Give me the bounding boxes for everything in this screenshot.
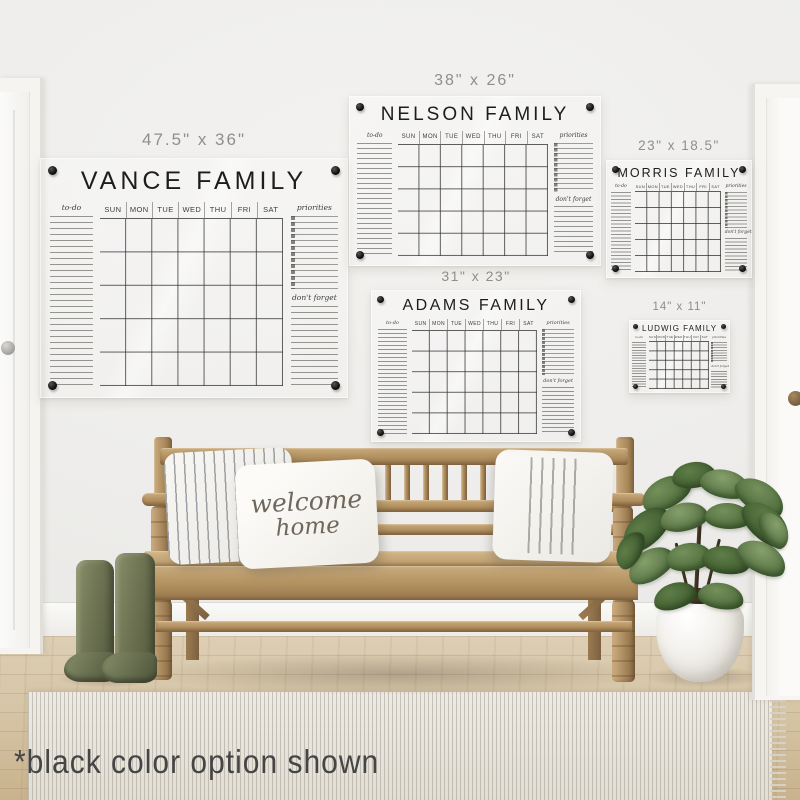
weekday-label: TUE — [440, 131, 462, 144]
weekday-label: TUE — [665, 335, 674, 341]
mounting-dot-icon — [612, 265, 619, 272]
month-grid: SUNMONTUEWEDTHUFRISAT — [635, 183, 722, 272]
rain-boot-right — [101, 553, 157, 683]
priorities-label: priorities — [554, 131, 593, 141]
footnote-text: *black color option shown — [14, 744, 379, 782]
todo-column: to-do — [357, 131, 392, 256]
grid-lines — [635, 192, 722, 272]
calendar-vance: 47.5" x 36" VANCE FAMILY to-do SUNMONTUE… — [40, 130, 348, 398]
month-grid: SUNMONTUEWEDTHUFRISAT — [398, 131, 548, 256]
weekday-label: FRI — [231, 202, 257, 218]
calendar-body: to-do SUNMONTUEWEDTHUFRISAT priorities d… — [40, 196, 348, 398]
weekday-label: MON — [429, 319, 447, 330]
month-grid: SUNMONTUEWEDTHUFRISAT — [412, 319, 537, 434]
todo-label: to-do — [632, 335, 646, 340]
calendar-body: to-do SUNMONTUEWEDTHUFRISAT priorities d… — [371, 315, 581, 442]
priorities-label: priorities — [725, 183, 748, 190]
weekday-label: FRI — [505, 131, 527, 144]
weekday-label: WED — [178, 202, 204, 218]
dont-forget-label: don't forget — [291, 292, 339, 304]
weekday-label: SAT — [257, 202, 283, 218]
todo-lines — [611, 192, 631, 272]
weekday-label: MON — [126, 202, 152, 218]
todo-lines — [357, 143, 392, 256]
mounting-dot-icon — [721, 384, 726, 389]
mounting-dot-icon — [377, 296, 384, 303]
mounting-dot-icon — [356, 251, 364, 259]
weekday-label: SAT — [709, 183, 722, 191]
mounting-dot-icon — [739, 265, 746, 272]
priorities-checklist — [291, 216, 339, 289]
priorities-label: priorities — [291, 202, 339, 214]
calendar-body: to-do SUNMONTUEWEDTHUFRISAT priorities d… — [629, 333, 730, 393]
family-title: VANCE FAMILY — [40, 167, 348, 196]
todo-label: to-do — [378, 319, 407, 327]
todo-label: to-do — [357, 131, 392, 141]
size-label: 23" x 18.5" — [606, 138, 752, 155]
weekday-label: FRI — [691, 335, 700, 341]
todo-column: to-do — [632, 335, 646, 389]
todo-column: to-do — [378, 319, 407, 434]
weekday-header: SUNMONTUEWEDTHUFRISAT — [635, 183, 722, 192]
calendar-adams: 31" x 23" ADAMS FAMILY to-do SUNMONTUEWE… — [371, 268, 581, 442]
acrylic-board: NELSON FAMILY to-do SUNMONTUEWEDTHUFRISA… — [349, 96, 601, 266]
mounting-dot-icon — [633, 384, 638, 389]
calendar-nelson: 38" x 26" NELSON FAMILY to-do SUNMONTUEW… — [349, 72, 601, 266]
acrylic-board: VANCE FAMILY to-do SUNMONTUEWEDTHUFRISAT… — [40, 158, 348, 398]
month-grid: SUNMONTUEWEDTHUFRISAT — [649, 335, 709, 389]
weekday-label: WED — [465, 319, 483, 330]
size-label: 47.5" x 36" — [40, 130, 348, 154]
weekday-label: THU — [483, 319, 501, 330]
priorities-column: priorities don't forget — [291, 202, 339, 386]
mounting-dot-icon — [356, 103, 364, 111]
priorities-label: priorities — [711, 335, 727, 340]
pillow-text-home: home — [275, 513, 340, 540]
weekday-label: SUN — [649, 335, 657, 341]
bench-apron — [150, 566, 638, 600]
bench-shadow — [135, 652, 665, 696]
family-title: LUDWIG FAMILY — [629, 324, 730, 333]
family-title: NELSON FAMILY — [349, 104, 601, 126]
size-label: 31" x 23" — [371, 268, 581, 285]
priorities-checklist — [542, 329, 574, 375]
mounting-dot-icon — [721, 324, 726, 329]
weekday-label: SUN — [412, 319, 429, 330]
mounting-dot-icon — [612, 166, 619, 173]
dont-forget-label: don't forget — [554, 195, 593, 205]
mounting-dot-icon — [48, 381, 57, 390]
weekday-label: THU — [204, 202, 230, 218]
month-grid: SUNMONTUEWEDTHUFRISAT — [100, 202, 283, 386]
todo-lines — [632, 342, 646, 389]
mounting-dot-icon — [586, 251, 594, 259]
calendar-body: to-do SUNMONTUEWEDTHUFRISAT priorities d… — [349, 126, 601, 266]
mounting-dot-icon — [633, 324, 638, 329]
todo-label: to-do — [50, 202, 93, 214]
family-title: ADAMS FAMILY — [371, 297, 581, 315]
dont-forget-label: don't forget — [711, 364, 727, 369]
mounting-dot-icon — [568, 429, 575, 436]
bench-spindle — [442, 465, 448, 502]
weekday-label: WED — [462, 131, 484, 144]
left-door-panel-line — [13, 110, 15, 630]
grid-lines — [398, 145, 548, 256]
todo-column: to-do — [611, 183, 631, 272]
right-doorknob-icon — [788, 391, 800, 406]
size-label: 14" x 11" — [629, 301, 730, 316]
weekday-label: MON — [419, 131, 441, 144]
priorities-checklist — [554, 143, 593, 193]
weekday-label: THU — [684, 183, 697, 191]
acrylic-board: ADAMS FAMILY to-do SUNMONTUEWEDTHUFRISAT… — [371, 290, 581, 442]
weekday-label: WED — [671, 183, 684, 191]
priorities-checklist — [725, 192, 748, 228]
acrylic-board: LUDWIG FAMILY to-do SUNMONTUEWEDTHUFRISA… — [629, 320, 730, 393]
weekday-label: SAT — [527, 131, 549, 144]
weekday-label: THU — [484, 131, 506, 144]
mounting-dot-icon — [586, 103, 594, 111]
rug-fringe — [770, 694, 786, 798]
left-door — [0, 92, 30, 648]
weekday-label: SUN — [398, 131, 419, 144]
grid-lines — [100, 219, 283, 386]
weekday-label: TUE — [152, 202, 178, 218]
priorities-column: priorities don't forget — [554, 131, 593, 256]
dont-forget-label: don't forget — [725, 229, 748, 236]
weekday-label: WED — [674, 335, 683, 341]
left-doorknob-icon — [1, 341, 15, 355]
weekday-label: SAT — [519, 319, 537, 330]
dont-forget-lines — [554, 206, 593, 255]
calendar-morris: 23" x 18.5" MORRIS FAMILY to-do SUNMONTU… — [606, 138, 752, 278]
weekday-label: SUN — [635, 183, 647, 191]
weekday-header: SUNMONTUEWEDTHUFRISAT — [412, 319, 537, 331]
bench-spindle — [385, 465, 391, 502]
family-title: MORRIS FAMILY — [606, 166, 752, 180]
bench-spindle — [404, 465, 410, 502]
weekday-header: SUNMONTUEWEDTHUFRISAT — [398, 131, 548, 145]
mounting-dot-icon — [377, 429, 384, 436]
pillow-stripe-band — [528, 457, 581, 555]
grid-lines — [412, 331, 537, 434]
priorities-column: priorities don't forget — [725, 183, 748, 272]
bench-stretcher — [156, 621, 632, 632]
grid-lines — [649, 342, 709, 389]
todo-lines — [378, 329, 407, 434]
weekday-label: SUN — [100, 202, 125, 218]
weekday-label: TUE — [447, 319, 465, 330]
weekday-label: FRI — [696, 183, 709, 191]
weekday-label: FRI — [501, 319, 519, 330]
welcome-home-pillow: welcome home — [234, 458, 379, 569]
bench-front-leg-right — [612, 600, 635, 682]
bench-spindle — [480, 465, 486, 502]
bench-spindle — [423, 465, 429, 502]
acrylic-board: MORRIS FAMILY to-do SUNMONTUEWEDTHUFRISA… — [606, 160, 752, 278]
mounting-dot-icon — [331, 166, 340, 175]
todo-label: to-do — [611, 183, 631, 190]
weekday-label: MON — [646, 183, 659, 191]
weekday-label: THU — [683, 335, 692, 341]
mounting-dot-icon — [48, 166, 57, 175]
dont-forget-lines — [291, 306, 339, 385]
weekday-header: SUNMONTUEWEDTHUFRISAT — [649, 335, 709, 342]
size-label: 38" x 26" — [349, 72, 601, 92]
dont-forget-lines — [542, 387, 574, 434]
bench-spindle — [461, 465, 467, 502]
dont-forget-label: don't forget — [542, 377, 574, 385]
mounting-dot-icon — [739, 166, 746, 173]
priorities-column: priorities don't forget — [711, 335, 727, 389]
priorities-label: priorities — [542, 319, 574, 327]
mounting-dot-icon — [568, 296, 575, 303]
mounting-dot-icon — [331, 381, 340, 390]
weekday-header: SUNMONTUEWEDTHUFRISAT — [100, 202, 283, 219]
striped-pillow-right — [492, 449, 614, 563]
calendar-ludwig: 14" x 11" LUDWIG FAMILY to-do SUNMONTUEW… — [629, 301, 730, 393]
priorities-checklist — [711, 342, 727, 364]
weekday-label: TUE — [659, 183, 672, 191]
calendar-body: to-do SUNMONTUEWEDTHUFRISAT priorities d… — [606, 180, 752, 278]
todo-lines — [50, 216, 93, 386]
todo-column: to-do — [50, 202, 93, 386]
priorities-column: priorities don't forget — [542, 319, 574, 434]
weekday-label: MON — [656, 335, 665, 341]
weekday-label: SAT — [700, 335, 709, 341]
